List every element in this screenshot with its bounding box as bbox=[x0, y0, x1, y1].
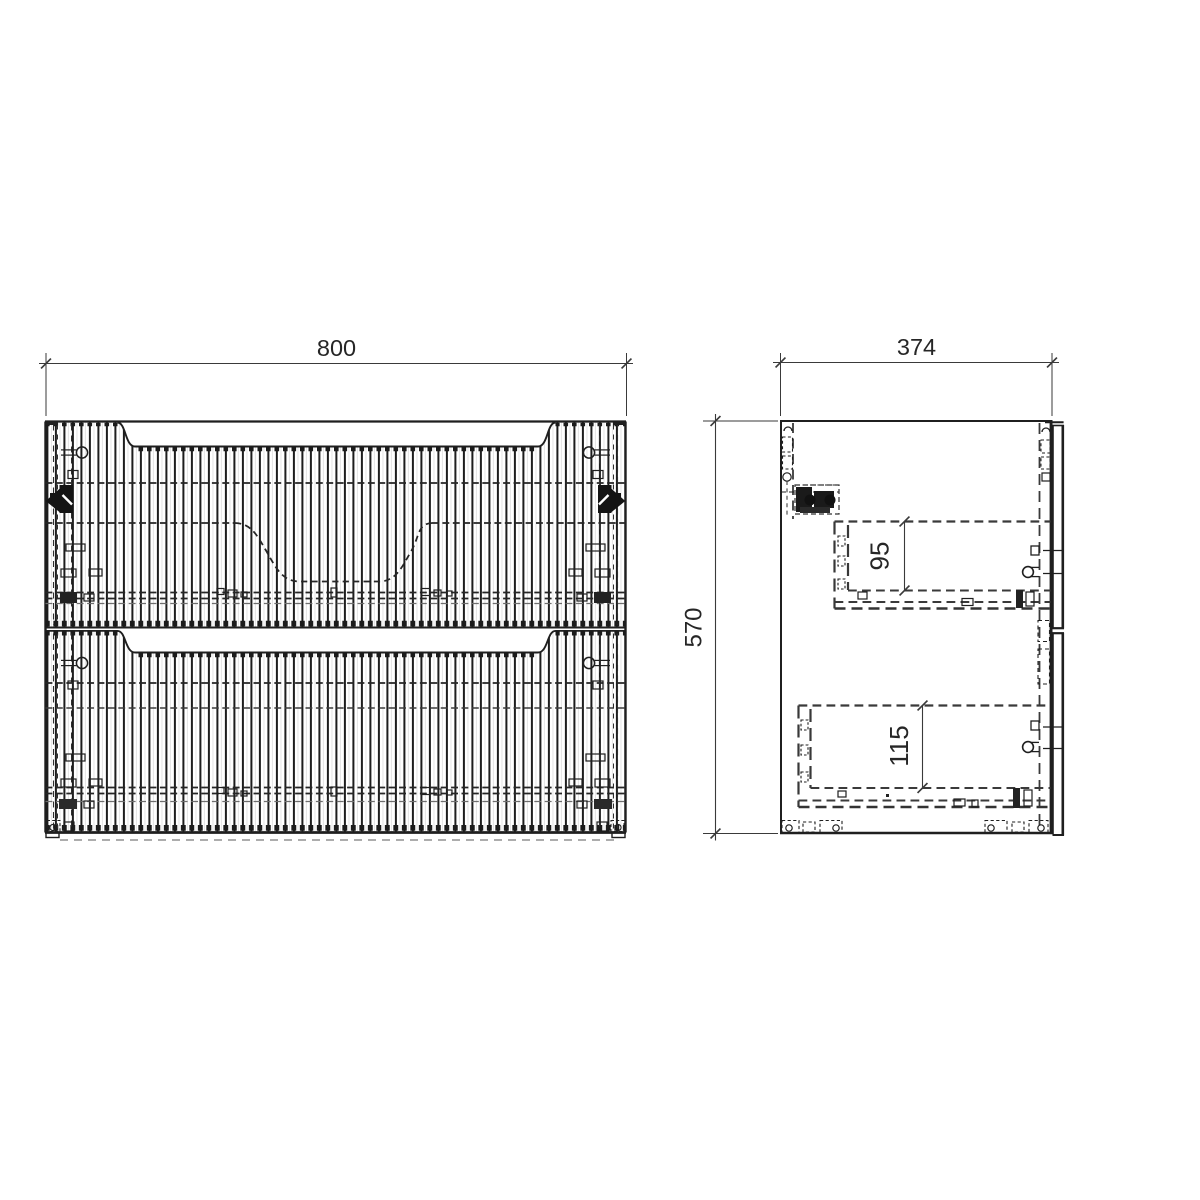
svg-text:374: 374 bbox=[897, 334, 936, 360]
svg-text:95: 95 bbox=[865, 542, 895, 571]
svg-text:115: 115 bbox=[884, 725, 914, 766]
svg-text:570: 570 bbox=[681, 607, 708, 647]
svg-text:800: 800 bbox=[317, 335, 356, 361]
